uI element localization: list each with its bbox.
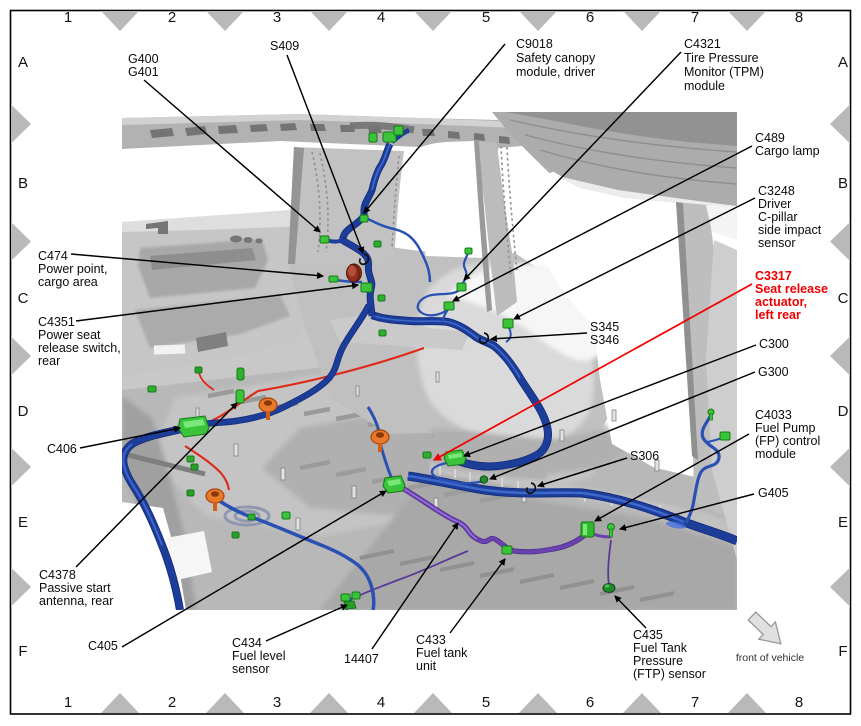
svg-text:G401: G401: [128, 65, 159, 79]
svg-text:unit: unit: [416, 659, 437, 673]
svg-text:2: 2: [168, 694, 176, 711]
svg-text:sensor: sensor: [232, 662, 270, 676]
svg-text:5: 5: [482, 9, 490, 26]
svg-text:S346: S346: [590, 333, 619, 347]
svg-text:D: D: [18, 403, 29, 420]
svg-text:B: B: [838, 175, 848, 192]
svg-text:(FP) control: (FP) control: [755, 434, 820, 448]
svg-text:G405: G405: [758, 486, 789, 500]
svg-text:Fuel tank: Fuel tank: [416, 646, 468, 660]
svg-text:side impact: side impact: [758, 223, 822, 237]
svg-text:C300: C300: [759, 337, 789, 351]
svg-text:3: 3: [273, 694, 281, 711]
svg-text:S345: S345: [590, 320, 619, 334]
svg-text:left rear: left rear: [755, 308, 801, 322]
svg-text:1: 1: [64, 9, 72, 26]
svg-text:C406: C406: [47, 442, 77, 456]
svg-text:D: D: [838, 403, 849, 420]
svg-text:Cargo lamp: Cargo lamp: [755, 144, 820, 158]
svg-text:Safety canopy: Safety canopy: [516, 51, 596, 65]
svg-text:6: 6: [586, 694, 594, 711]
svg-text:rear: rear: [38, 354, 60, 368]
svg-text:B: B: [18, 175, 28, 192]
svg-text:A: A: [18, 54, 28, 71]
svg-text:C3248: C3248: [758, 184, 795, 198]
svg-text:module: module: [755, 447, 796, 461]
svg-text:F: F: [838, 643, 847, 660]
svg-text:cargo area: cargo area: [38, 275, 98, 289]
svg-text:Seat release: Seat release: [755, 282, 828, 296]
svg-text:8: 8: [795, 694, 803, 711]
svg-text:Fuel Tank: Fuel Tank: [633, 641, 688, 655]
svg-text:C: C: [18, 290, 29, 307]
svg-text:6: 6: [586, 9, 594, 26]
svg-text:antenna, rear: antenna, rear: [39, 594, 113, 608]
svg-text:2: 2: [168, 9, 176, 26]
svg-text:C433: C433: [416, 633, 446, 647]
svg-text:Pressure: Pressure: [633, 654, 683, 668]
svg-text:A: A: [838, 54, 848, 71]
svg-text:8: 8: [795, 9, 803, 26]
svg-text:G400: G400: [128, 52, 159, 66]
svg-text:S409: S409: [270, 39, 299, 53]
svg-text:5: 5: [482, 694, 490, 711]
svg-text:C4351: C4351: [38, 315, 75, 329]
svg-text:G300: G300: [758, 365, 789, 379]
svg-text:E: E: [838, 514, 848, 531]
svg-text:7: 7: [691, 694, 699, 711]
svg-text:4: 4: [377, 9, 385, 26]
svg-text:C: C: [838, 290, 849, 307]
svg-text:Fuel level: Fuel level: [232, 649, 286, 663]
svg-text:Fuel Pump: Fuel Pump: [755, 421, 815, 435]
svg-text:Tire Pressure: Tire Pressure: [684, 51, 759, 65]
svg-text:C-pillar: C-pillar: [758, 210, 798, 224]
svg-text:Power point,: Power point,: [38, 262, 107, 276]
svg-text:14407: 14407: [344, 652, 379, 666]
svg-text:C435: C435: [633, 628, 663, 642]
svg-text:module, driver: module, driver: [516, 65, 595, 79]
svg-text:release switch,: release switch,: [38, 341, 121, 355]
svg-text:C474: C474: [38, 249, 68, 263]
svg-text:front of vehicle: front of vehicle: [736, 652, 804, 664]
svg-text:Driver: Driver: [758, 197, 791, 211]
svg-text:C489: C489: [755, 131, 785, 145]
svg-text:actuator,: actuator,: [755, 295, 807, 309]
svg-text:C4378: C4378: [39, 568, 76, 582]
svg-text:Monitor (TPM): Monitor (TPM): [684, 65, 764, 79]
svg-text:module: module: [684, 79, 725, 93]
svg-text:C4321: C4321: [684, 37, 721, 51]
svg-text:C434: C434: [232, 636, 262, 650]
svg-text:1: 1: [64, 694, 72, 711]
svg-text:(FTP) sensor: (FTP) sensor: [633, 667, 706, 681]
svg-text:3: 3: [273, 9, 281, 26]
svg-text:4: 4: [377, 694, 385, 711]
svg-text:C4033: C4033: [755, 408, 792, 422]
svg-text:C3317: C3317: [755, 269, 792, 283]
svg-text:E: E: [18, 514, 28, 531]
svg-text:F: F: [18, 643, 27, 660]
svg-text:C405: C405: [88, 639, 118, 653]
svg-text:sensor: sensor: [758, 236, 796, 250]
svg-text:S306: S306: [630, 449, 659, 463]
svg-text:Power seat: Power seat: [38, 328, 101, 342]
svg-text:7: 7: [691, 9, 699, 26]
svg-text:C9018: C9018: [516, 37, 553, 51]
svg-text:Passive start: Passive start: [39, 581, 111, 595]
